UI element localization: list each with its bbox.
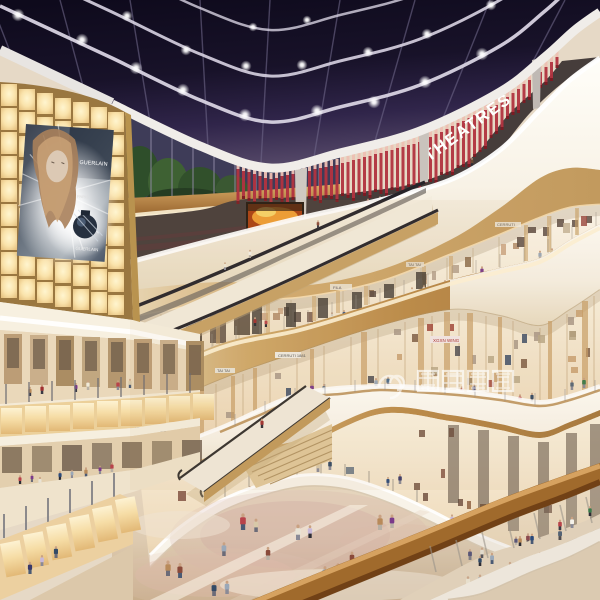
svg-text:PARIS: PARIS (77, 194, 89, 200)
